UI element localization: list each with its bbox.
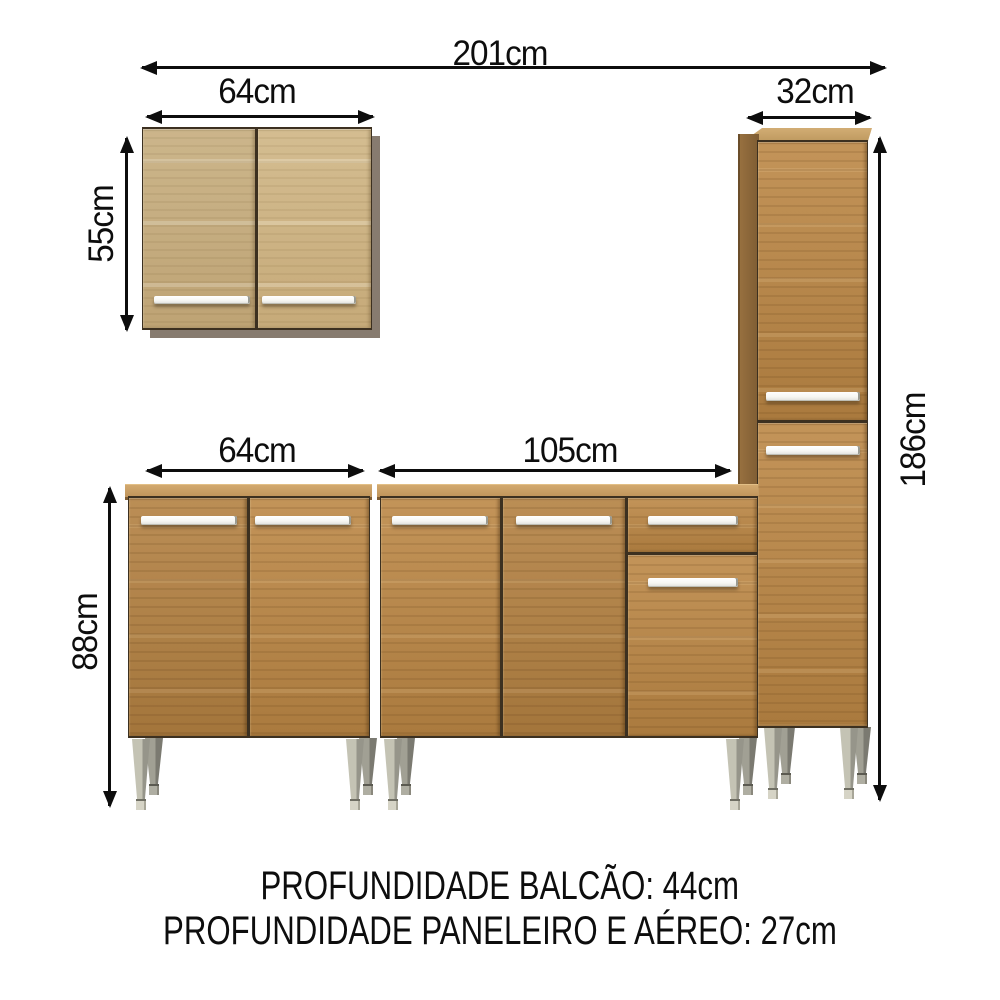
dimension-label-base-cabinet-height: 88cm — [66, 566, 106, 699]
base-right-lower-door-handle — [648, 578, 738, 587]
dimension-arrow-wall-cabinet-width — [147, 115, 373, 118]
wall-cabinet — [142, 127, 372, 330]
base-cabinet-right — [380, 496, 758, 738]
dimension-arrow-base-left-width — [147, 469, 363, 472]
tall-cabinet — [757, 140, 868, 728]
dimension-arrow-tall-cabinet-width — [748, 116, 870, 119]
base-left-door-1 — [129, 498, 247, 736]
base-right-drawer-handle — [648, 516, 738, 525]
base-left-door-2-handle — [255, 516, 351, 525]
cabinet-leg — [132, 739, 150, 810]
base-right-door-2-handle — [516, 516, 612, 525]
dimension-arrow-total-width — [142, 66, 885, 69]
dimension-arrow-base-right-width — [380, 469, 730, 472]
base-right-drawer — [628, 498, 757, 552]
depth-note-balcao-text: PROFUNDIDADE BALCÃO: 44cm — [261, 866, 740, 906]
base-right-door-2 — [503, 498, 625, 736]
base-right-door-1-handle — [392, 516, 488, 525]
tall-cabinet-side-panel — [738, 134, 759, 484]
cabinet-leg — [840, 728, 858, 799]
dimension-label-wall-cabinet-width: 64cm — [191, 74, 324, 111]
base-cabinet-left — [128, 496, 370, 738]
cabinet-leg — [384, 739, 402, 810]
cabinet-leg — [346, 739, 364, 810]
tall-cabinet-lower-door — [758, 423, 867, 726]
dimension-arrow-wall-cabinet-height — [125, 138, 128, 330]
tall-cabinet-upper-door — [758, 142, 867, 420]
cabinet-leg — [726, 739, 744, 810]
wall-cabinet-left-door-handle — [154, 296, 250, 304]
depth-note-balcao: PROFUNDIDADE BALCÃO: 44cm — [0, 866, 1000, 906]
dimension-arrow-tall-cabinet-height — [878, 138, 881, 800]
tall-cabinet-upper-door-handle — [766, 392, 860, 401]
kitchen-set-dimension-diagram: 201cm 64cm 32cm 64cm 105cm 55cm 88cm 186… — [0, 0, 1000, 1000]
tall-cabinet-lower-door-handle — [766, 446, 860, 455]
base-right-door-1 — [381, 498, 500, 736]
dimension-label-tall-cabinet-width: 32cm — [749, 74, 882, 111]
depth-note-paneleiro-aereo-text: PROFUNDIDADE PANELEIRO E AÉREO: 27cm — [163, 911, 837, 951]
depth-note-paneleiro-aereo: PROFUNDIDADE PANELEIRO E AÉREO: 27cm — [0, 911, 1000, 951]
base-left-door-1-handle — [141, 516, 237, 525]
dimension-label-wall-cabinet-height: 55cm — [82, 158, 122, 291]
dimension-label-tall-cabinet-height: 186cm — [894, 374, 934, 507]
cabinet-leg — [764, 728, 782, 799]
dimension-arrow-base-cabinet-height — [108, 488, 111, 806]
dimension-label-base-right-width: 105cm — [504, 433, 637, 470]
dimension-label-base-left-width: 64cm — [191, 433, 324, 470]
wall-cabinet-right-door-handle — [262, 296, 356, 304]
base-left-door-2 — [250, 498, 369, 736]
